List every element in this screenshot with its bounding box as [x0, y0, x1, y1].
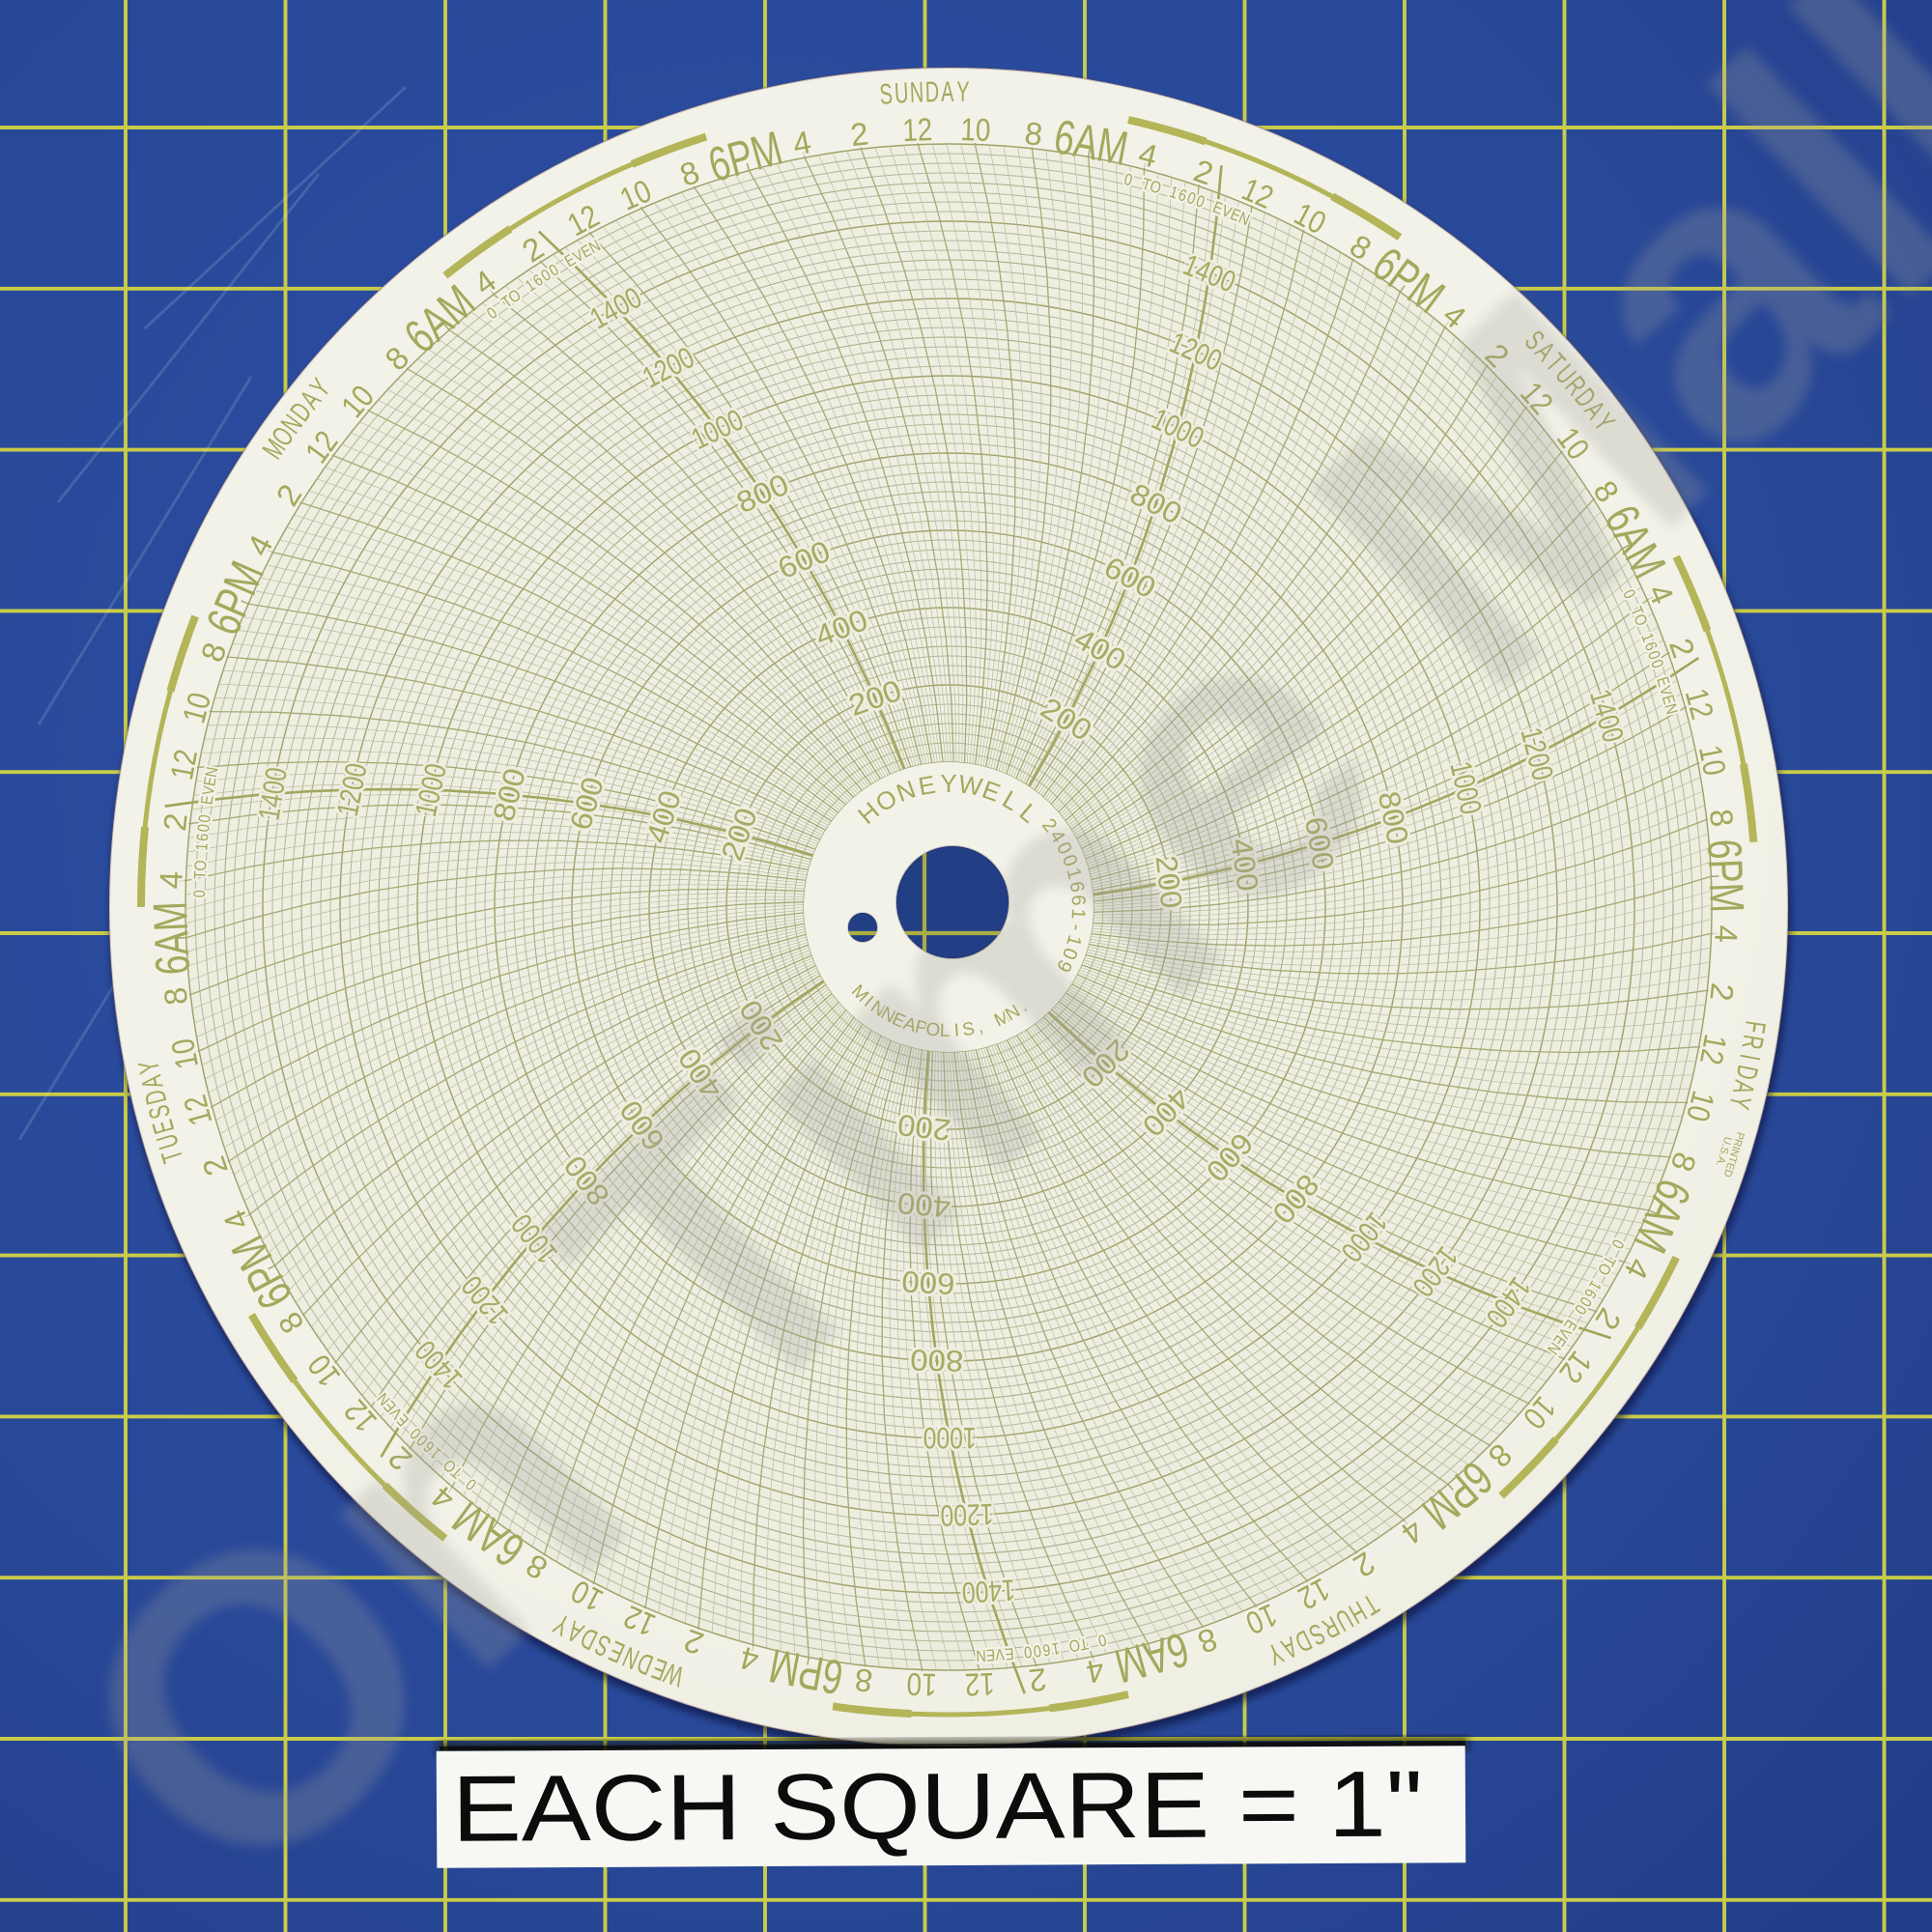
svg-text:6PM: 6PM	[1697, 838, 1754, 914]
svg-text:6AM: 6AM	[143, 900, 200, 976]
svg-text:1: 1	[193, 842, 212, 851]
svg-text:Y: Y	[956, 76, 970, 108]
svg-text:D: D	[924, 76, 939, 108]
svg-text:S: S	[878, 78, 894, 111]
svg-text:O: O	[192, 860, 211, 871]
svg-text:10: 10	[960, 111, 991, 148]
svg-text:EACH SQUARE = 1": EACH SQUARE = 1"	[452, 1750, 1424, 1861]
svg-text:0: 0	[191, 890, 209, 898]
svg-text:U: U	[894, 77, 909, 110]
svg-text:12: 12	[964, 1666, 995, 1703]
svg-text:10: 10	[906, 1666, 937, 1703]
svg-text:A: A	[941, 76, 953, 108]
svg-text:4: 4	[1708, 924, 1745, 944]
svg-text:N: N	[976, 1646, 986, 1664]
svg-text:12: 12	[901, 111, 932, 148]
svg-text:N: N	[909, 76, 924, 109]
svg-text:4: 4	[153, 870, 189, 890]
